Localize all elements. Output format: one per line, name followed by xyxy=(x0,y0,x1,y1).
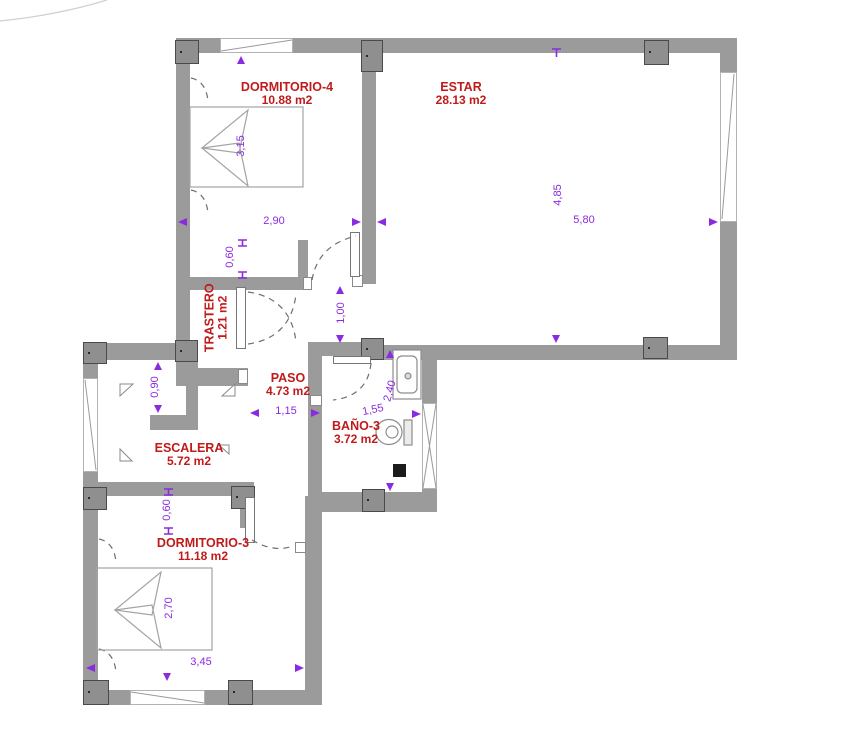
floor-plan: DORMITORIO-4 10.88 m2 ESTAR 28.13 m2 TRA… xyxy=(0,0,842,752)
door-leaf-bano xyxy=(333,356,371,364)
column xyxy=(175,40,199,64)
wall-stair-horizontal xyxy=(150,415,198,430)
column xyxy=(83,680,109,705)
dim-paso-width: 1,15 xyxy=(271,405,301,417)
dim-estar-width: 5,80 xyxy=(569,214,599,226)
room-area: 4.73 m2 xyxy=(238,385,338,398)
wall-dorm4-door-stub xyxy=(298,240,308,277)
duct-niche-bano xyxy=(422,403,437,489)
window-estar-east xyxy=(720,72,737,222)
shower-drain-symbol xyxy=(393,464,406,477)
room-area: 1.21 m2 xyxy=(216,274,229,362)
door-leaf-trastero xyxy=(236,287,246,349)
wall-dorm3-east xyxy=(305,496,322,704)
door-swing-trastero xyxy=(248,292,296,342)
room-area: 5.72 m2 xyxy=(139,455,239,468)
door-swing-bano xyxy=(333,363,371,400)
room-name: PASO xyxy=(238,371,338,385)
dim-paso-opening: 1,00 xyxy=(335,298,347,328)
room-name: BAÑO-3 xyxy=(306,419,406,433)
door-leaf-dorm4 xyxy=(350,232,360,277)
room-label-dormitorio-4: DORMITORIO-4 10.88 m2 xyxy=(226,80,348,107)
room-name: DORMITORIO-4 xyxy=(226,80,348,94)
dim-dorm3-door: 0,60 xyxy=(161,494,173,526)
room-name: TRASTERO xyxy=(202,274,216,362)
wall-estar-east-lower xyxy=(720,222,737,360)
plan-symbols-overlay xyxy=(0,0,842,752)
dim-dorm4-width: 2,90 xyxy=(259,215,289,227)
room-label-bano-3: BAÑO-3 3.72 m2 xyxy=(306,419,406,446)
column xyxy=(361,40,383,72)
column xyxy=(228,680,253,705)
column xyxy=(83,342,107,364)
dim-bano-depth: 2,40 xyxy=(380,375,399,407)
dim-trastero-door: 0,60 xyxy=(224,241,236,273)
decorative-arc xyxy=(0,0,107,21)
dim-dorm3-width: 3,45 xyxy=(185,656,217,668)
door-frame xyxy=(303,277,312,290)
column xyxy=(644,40,669,65)
wall-left-upper xyxy=(176,53,190,362)
window-escalera-west xyxy=(83,378,98,472)
room-label-trastero: TRASTERO 1.21 m2 xyxy=(202,274,229,362)
room-area: 11.18 m2 xyxy=(142,550,264,563)
shutter-arc xyxy=(191,78,208,101)
dim-escalera-pass: 0,90 xyxy=(149,372,161,402)
column xyxy=(362,489,385,512)
dim-dorm4-depth: 3,15 xyxy=(235,131,247,161)
room-label-escalera: ESCALERA 5.72 m2 xyxy=(139,441,239,468)
dim-estar-depth: 4,85 xyxy=(552,180,564,210)
door-frame xyxy=(295,542,306,553)
room-name: ESTAR xyxy=(411,80,511,94)
bed-symbol-dorm3 xyxy=(97,568,212,650)
shutter-arc xyxy=(99,649,116,672)
wall-divider-dorm4-estar xyxy=(362,53,376,284)
room-label-estar: ESTAR 28.13 m2 xyxy=(411,80,511,107)
window-dorm4-north xyxy=(220,38,293,53)
room-area: 3.72 m2 xyxy=(306,433,406,446)
room-area: 10.88 m2 xyxy=(226,94,348,107)
column xyxy=(83,487,107,510)
window-dorm3-south xyxy=(130,690,205,705)
room-label-dormitorio-3: DORMITORIO-3 11.18 m2 xyxy=(142,536,264,563)
column xyxy=(175,340,198,362)
shutter-arc xyxy=(191,190,208,213)
door-swing-trastero-2 xyxy=(248,294,296,344)
shutter-arc xyxy=(99,539,116,562)
room-label-paso: PASO 4.73 m2 xyxy=(238,371,338,398)
column xyxy=(643,337,668,359)
room-name: DORMITORIO-3 xyxy=(142,536,264,550)
room-area: 28.13 m2 xyxy=(411,94,511,107)
dim-dorm3-depth: 2,70 xyxy=(163,593,175,623)
room-name: ESCALERA xyxy=(139,441,239,455)
wall-bano-west xyxy=(308,342,322,492)
wall-estar-east-corner xyxy=(720,53,737,72)
